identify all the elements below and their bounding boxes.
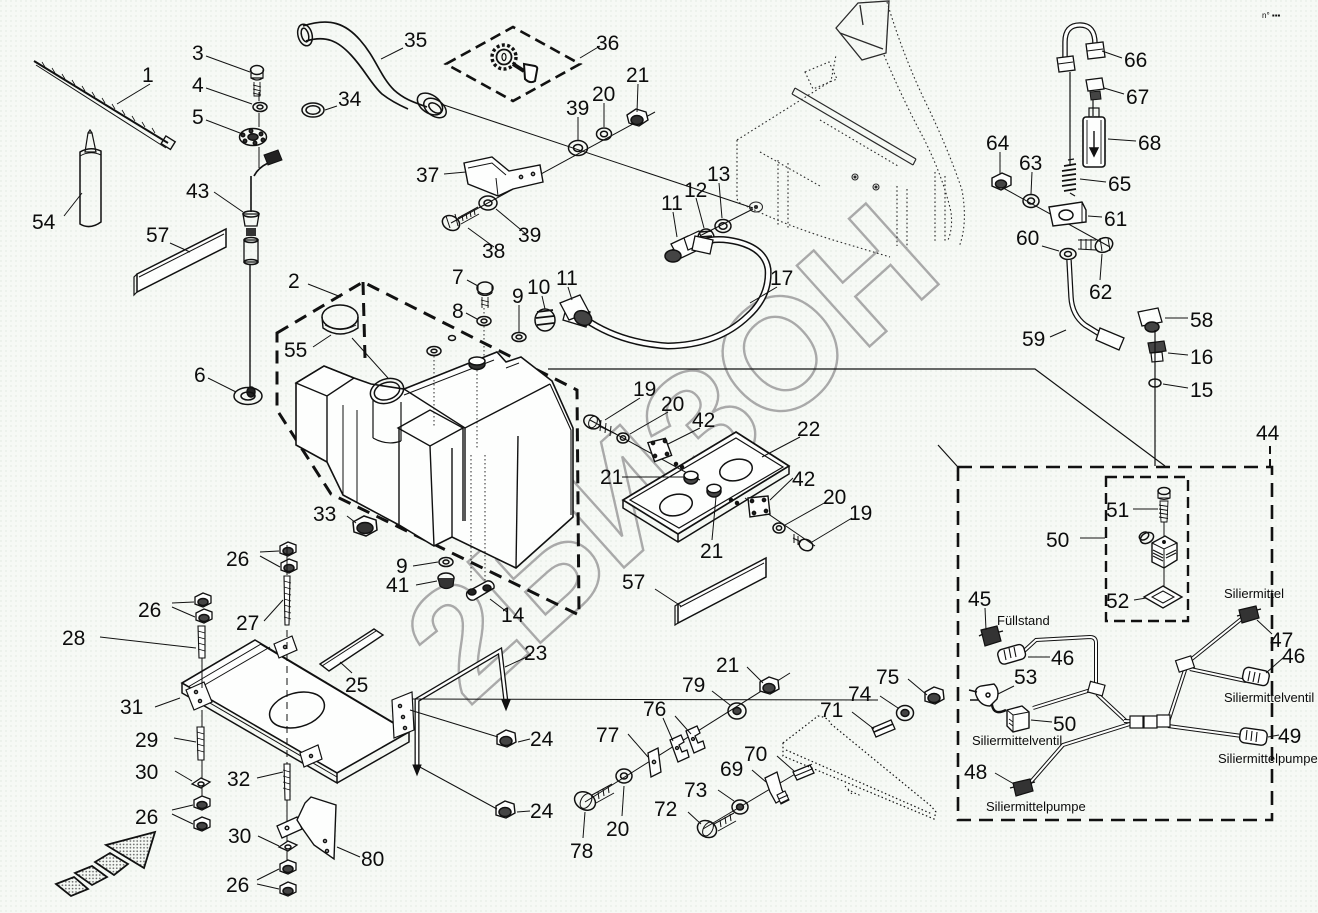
svg-text:80: 80	[361, 848, 384, 871]
svg-text:25: 25	[345, 674, 368, 697]
svg-text:39: 39	[518, 224, 541, 247]
svg-text:Siliermittelventil: Siliermittelventil	[972, 733, 1062, 748]
svg-text:1: 1	[142, 64, 154, 87]
svg-text:64: 64	[986, 132, 1010, 155]
svg-text:53: 53	[1014, 666, 1037, 689]
svg-text:17: 17	[770, 267, 793, 290]
svg-text:14: 14	[501, 604, 525, 627]
svg-text:30: 30	[135, 761, 158, 784]
svg-text:22: 22	[797, 418, 820, 441]
svg-text:26: 26	[226, 874, 249, 897]
svg-text:46: 46	[1282, 645, 1305, 668]
svg-text:23: 23	[524, 642, 547, 665]
svg-text:57: 57	[146, 224, 169, 247]
svg-text:13: 13	[707, 163, 730, 186]
svg-text:67: 67	[1126, 86, 1149, 109]
svg-text:35: 35	[404, 29, 427, 52]
svg-text:45: 45	[968, 588, 991, 611]
svg-text:70: 70	[744, 743, 767, 766]
svg-text:Siliermittelpumpe: Siliermittelpumpe	[1218, 751, 1318, 766]
svg-text:42: 42	[792, 468, 815, 491]
svg-text:Siliermittelpumpe: Siliermittelpumpe	[986, 799, 1086, 814]
svg-text:72: 72	[654, 798, 677, 821]
svg-text:66: 66	[1124, 49, 1147, 72]
svg-text:21: 21	[700, 540, 723, 563]
svg-text:75: 75	[876, 666, 899, 689]
svg-text:50: 50	[1046, 529, 1069, 552]
svg-text:59: 59	[1022, 328, 1045, 351]
svg-text:44: 44	[1256, 422, 1280, 445]
svg-text:Füllstand: Füllstand	[997, 613, 1050, 628]
svg-text:28: 28	[62, 627, 85, 650]
svg-text:24: 24	[530, 800, 554, 823]
svg-text:5: 5	[192, 106, 204, 129]
svg-text:8: 8	[452, 300, 464, 323]
svg-text:6: 6	[194, 364, 206, 387]
svg-text:12: 12	[684, 179, 707, 202]
svg-text:27: 27	[236, 612, 259, 635]
svg-text:26: 26	[226, 548, 249, 571]
svg-text:4: 4	[192, 74, 204, 97]
svg-text:11: 11	[556, 267, 578, 290]
svg-text:63: 63	[1019, 152, 1042, 175]
svg-text:26: 26	[135, 806, 158, 829]
svg-text:20: 20	[823, 486, 846, 509]
svg-text:74: 74	[848, 683, 872, 706]
svg-text:19: 19	[849, 502, 872, 525]
svg-text:32: 32	[227, 768, 250, 791]
svg-text:33: 33	[313, 503, 336, 526]
svg-text:24: 24	[530, 728, 554, 751]
svg-text:73: 73	[684, 779, 707, 802]
svg-text:60: 60	[1016, 227, 1039, 250]
svg-text:41: 41	[386, 574, 409, 597]
svg-text:61: 61	[1104, 208, 1127, 231]
svg-text:42: 42	[692, 409, 715, 432]
svg-text:79: 79	[682, 674, 705, 697]
svg-text:52: 52	[1106, 590, 1129, 613]
svg-text:69: 69	[720, 758, 743, 781]
svg-text:20: 20	[592, 83, 615, 106]
svg-text:36: 36	[596, 32, 619, 55]
svg-text:2: 2	[288, 270, 300, 293]
svg-text:3: 3	[192, 42, 204, 65]
svg-text:20: 20	[606, 818, 629, 841]
svg-text:65: 65	[1108, 173, 1131, 196]
svg-text:30: 30	[228, 825, 251, 848]
svg-text:21: 21	[716, 654, 739, 677]
svg-text:21: 21	[626, 64, 649, 87]
svg-text:29: 29	[135, 729, 158, 752]
svg-text:7: 7	[452, 266, 464, 289]
svg-text:48: 48	[964, 761, 987, 784]
svg-text:39: 39	[566, 97, 589, 120]
svg-text:62: 62	[1089, 281, 1112, 304]
svg-text:55: 55	[284, 339, 307, 362]
svg-text:57: 57	[622, 571, 645, 594]
svg-text:68: 68	[1138, 132, 1161, 155]
svg-text:Siliermittelventil: Siliermittelventil	[1224, 690, 1314, 705]
svg-text:76: 76	[643, 698, 666, 721]
svg-text:71: 71	[820, 699, 843, 722]
svg-text:16: 16	[1190, 346, 1213, 369]
svg-text:9: 9	[512, 285, 524, 308]
svg-text:38: 38	[482, 240, 505, 263]
svg-text:46: 46	[1051, 647, 1074, 670]
svg-text:19: 19	[633, 378, 656, 401]
svg-text:Siliermittel: Siliermittel	[1224, 586, 1284, 601]
svg-text:31: 31	[120, 696, 143, 719]
svg-text:20: 20	[661, 393, 684, 416]
svg-text:34: 34	[338, 88, 362, 111]
svg-text:15: 15	[1190, 379, 1213, 402]
svg-text:43: 43	[186, 180, 209, 203]
svg-text:n° ▪▪▪: n° ▪▪▪	[1262, 11, 1281, 20]
svg-text:58: 58	[1190, 309, 1213, 332]
svg-text:54: 54	[32, 211, 56, 234]
svg-text:21: 21	[600, 466, 623, 489]
svg-text:77: 77	[596, 724, 619, 747]
svg-text:37: 37	[416, 164, 439, 187]
svg-text:49: 49	[1278, 725, 1301, 748]
svg-text:26: 26	[138, 599, 161, 622]
svg-text:51: 51	[1106, 499, 1129, 522]
svg-text:11: 11	[661, 192, 683, 215]
svg-text:10: 10	[527, 276, 550, 299]
svg-text:78: 78	[570, 840, 593, 863]
